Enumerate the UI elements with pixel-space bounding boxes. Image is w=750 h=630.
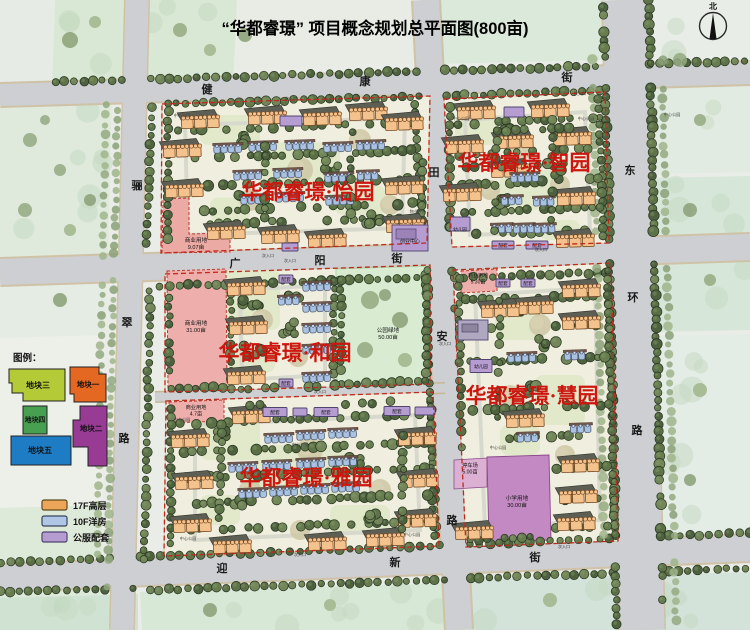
svg-text:地块二: 地块二 [80, 423, 103, 433]
svg-text:幼儿园: 幼儿园 [453, 226, 467, 233]
svg-text:迎: 迎 [217, 561, 228, 575]
svg-text:街: 街 [529, 550, 541, 564]
svg-text:商业用地: 商业用地 [186, 403, 207, 411]
svg-text:中心公园: 中心公园 [174, 416, 191, 423]
svg-text:5.30亩: 5.30亩 [471, 279, 486, 286]
svg-text:图例：: 图例： [13, 352, 42, 364]
svg-text:幼儿园: 幼儿园 [474, 363, 488, 370]
svg-text:配套: 配套 [281, 380, 291, 387]
svg-text:中心公园: 中心公园 [490, 444, 507, 451]
svg-text:5.00亩: 5.00亩 [462, 468, 477, 476]
svg-text:商业用地: 商业用地 [185, 319, 208, 327]
svg-text:华都睿璟·怡园: 华都睿璟·怡园 [241, 180, 374, 204]
svg-text:配套: 配套 [321, 409, 331, 416]
svg-text:配套: 配套 [270, 409, 280, 416]
svg-text:配套: 配套 [498, 280, 508, 287]
svg-text:50.00亩: 50.00亩 [378, 333, 398, 341]
svg-text:次入口: 次入口 [558, 543, 570, 549]
svg-text:地块四: 地块四 [25, 415, 46, 424]
svg-text:东: 东 [625, 163, 636, 177]
svg-text:次入口: 次入口 [262, 252, 274, 258]
svg-text:地块三: 地块三 [26, 380, 50, 390]
svg-text:31.00亩: 31.00亩 [186, 326, 206, 334]
svg-text:路: 路 [447, 513, 459, 527]
svg-text:中心公园: 中心公园 [578, 115, 595, 122]
svg-text:骊: 骊 [132, 179, 143, 192]
svg-text:次入口: 次入口 [314, 388, 326, 394]
svg-text:“华都睿璟” 项目概念规划总平面图(800亩): “华都睿璟” 项目概念规划总平面图(800亩) [221, 18, 528, 38]
svg-text:公服配套: 公服配套 [73, 532, 110, 543]
svg-text:健: 健 [202, 82, 214, 96]
svg-text:康: 康 [360, 74, 372, 88]
svg-text:30.00亩: 30.00亩 [507, 501, 527, 509]
svg-text:街: 街 [561, 70, 573, 84]
svg-text:中心公园: 中心公园 [292, 441, 309, 448]
svg-text:地块一: 地块一 [77, 379, 100, 389]
svg-text:环: 环 [628, 291, 639, 304]
svg-text:次入口: 次入口 [285, 95, 297, 101]
svg-text:田: 田 [429, 166, 440, 179]
svg-text:小学用地: 小学用地 [506, 494, 529, 502]
svg-text:华都睿璟·智园: 华都睿璟·智园 [457, 151, 590, 175]
svg-text:中心公园: 中心公园 [664, 111, 681, 118]
svg-text:阳: 阳 [315, 253, 326, 267]
svg-text:北: 北 [709, 1, 717, 11]
svg-text:配套: 配套 [281, 276, 291, 283]
svg-text:街: 街 [391, 251, 403, 265]
svg-text:地块五: 地块五 [28, 445, 52, 455]
svg-text:商业用地: 商业用地 [185, 236, 208, 244]
svg-text:次入口: 次入口 [574, 90, 586, 96]
svg-text:中心公园: 中心公园 [180, 535, 197, 542]
svg-text:翠: 翠 [122, 316, 133, 329]
svg-text:次入口: 次入口 [439, 340, 451, 346]
svg-text:10F洋房: 10F洋房 [73, 516, 107, 527]
svg-text:物业中心: 物业中心 [410, 208, 428, 215]
svg-text:配套: 配套 [392, 408, 402, 415]
svg-text:中心公园: 中心公园 [453, 115, 470, 122]
svg-text:中心公园: 中心公园 [404, 531, 421, 538]
svg-text:华都睿璟·雅园: 华都睿璟·雅园 [239, 466, 372, 490]
svg-text:配套: 配套 [523, 280, 533, 287]
svg-text:商业用地: 商业用地 [468, 272, 488, 279]
svg-text:公园绿地: 公园绿地 [377, 326, 400, 334]
svg-text:4.7亩: 4.7亩 [190, 410, 202, 418]
svg-text:华都睿璟·和园: 华都睿璟·和园 [218, 341, 351, 365]
svg-text:次入口: 次入口 [284, 257, 296, 263]
svg-text:停车场: 停车场 [462, 461, 478, 469]
svg-text:17F高层: 17F高层 [73, 500, 107, 511]
svg-text:广: 广 [230, 256, 241, 270]
svg-text:路: 路 [119, 431, 131, 445]
svg-text:9.07亩: 9.07亩 [188, 243, 205, 251]
svg-text:华都睿璟·慧园: 华都睿璟·慧园 [465, 384, 598, 408]
svg-text:中心公园: 中心公园 [174, 112, 191, 119]
svg-text:次入口: 次入口 [535, 246, 547, 252]
svg-text:次入口: 次入口 [294, 551, 306, 557]
svg-text:路: 路 [632, 423, 644, 437]
svg-text:新: 新 [390, 555, 401, 569]
